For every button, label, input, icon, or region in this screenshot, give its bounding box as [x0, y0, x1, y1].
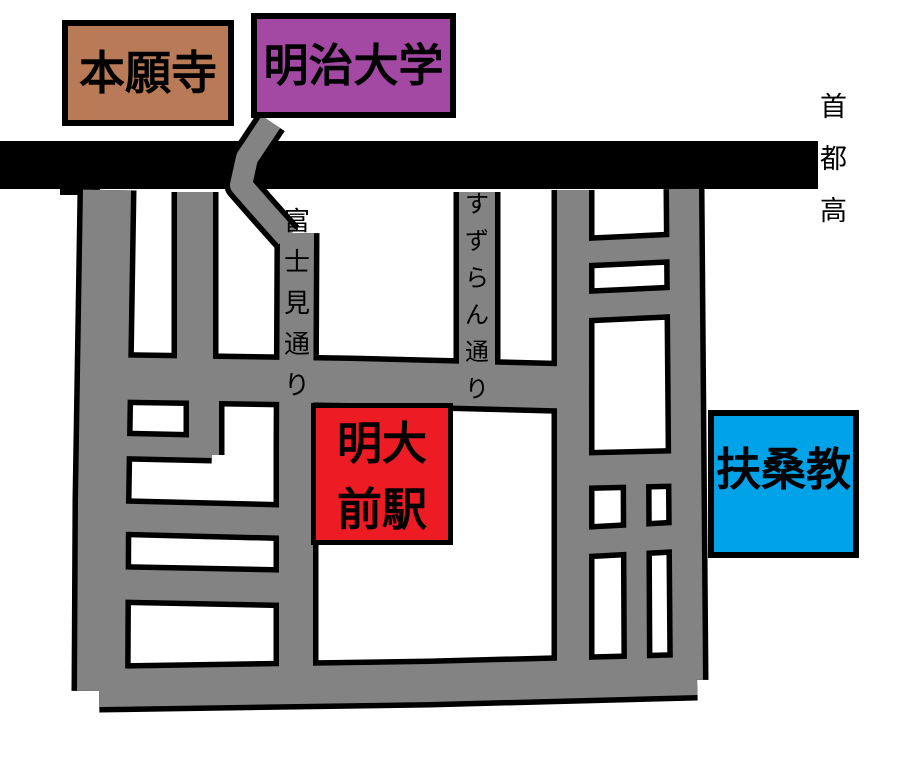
- shuto-expressway-label: 首都高: [818, 82, 849, 238]
- map-container: 本願寺 明治大学 明大 前駅 扶桑教 富士見通り すずらん通り 首都高: [0, 0, 922, 778]
- road-east-cross2: [566, 301, 694, 307]
- road-sw-short: [120, 446, 212, 448]
- road-east-cross4: [566, 536, 694, 543]
- fujimi-dori-street-label: 富士見通り: [281, 202, 313, 407]
- fusokyo-box: 扶桑教: [708, 410, 859, 558]
- road-east-cross1: [566, 247, 694, 253]
- road-right-outer: [684, 189, 688, 680]
- road-right-mid: [636, 470, 637, 673]
- road-east-cross3: [566, 468, 694, 471]
- meidaimae-station-box: 明大 前駅: [311, 403, 453, 545]
- road-station-front: [90, 378, 586, 388]
- road-bottom: [99, 676, 697, 688]
- honganji-temple-box: 本願寺: [62, 20, 234, 126]
- meiji-university-box: 明治大学: [251, 13, 456, 118]
- road-left-outer: [101, 190, 107, 691]
- road-sw-cross2: [95, 584, 298, 588]
- shuto-expressway-bar: [0, 141, 818, 189]
- suzuran-dori-street-label: すずらん通り: [462, 186, 492, 408]
- road-sw-cross1: [95, 517, 298, 522]
